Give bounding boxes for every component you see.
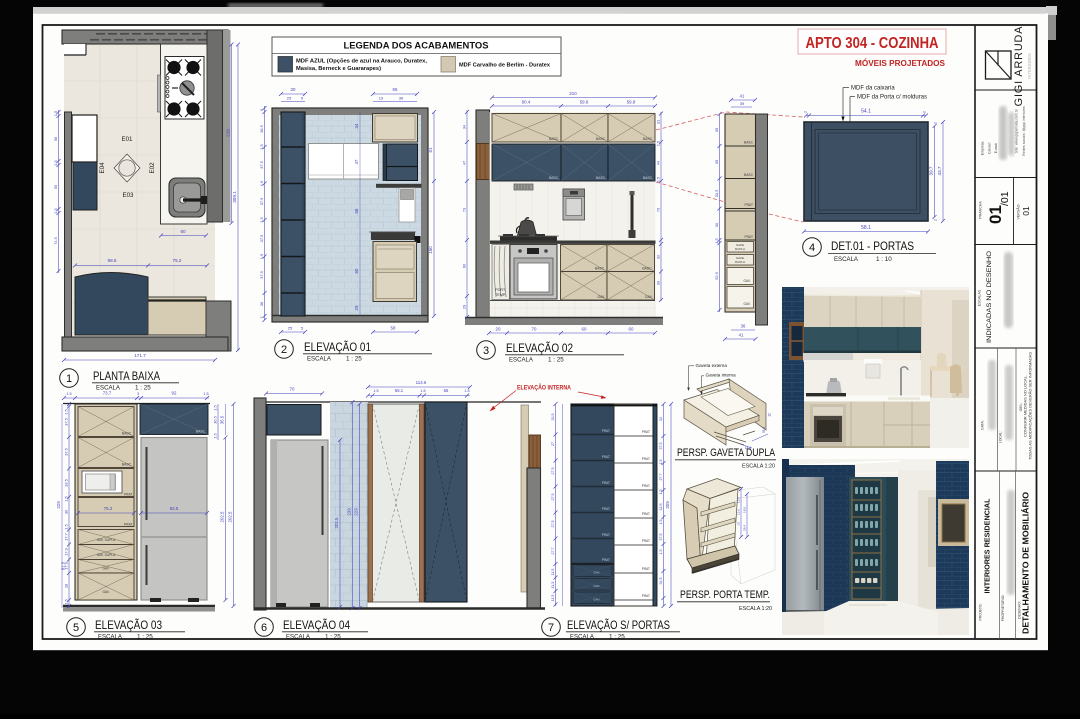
- svg-text:52.9: 52.9: [714, 272, 719, 280]
- svg-text:GAV. DUPLA: GAV. DUPLA: [97, 538, 116, 542]
- svg-text:ESCALA 1:20: ESCALA 1:20: [742, 464, 775, 470]
- svg-text:PRAT: PRAT: [602, 533, 610, 537]
- svg-text:1 : 10: 1 : 10: [876, 256, 892, 263]
- svg-text:1 : 25: 1 : 25: [609, 634, 625, 641]
- svg-text:59.8: 59.8: [580, 100, 589, 105]
- svg-text:31: 31: [655, 120, 660, 124]
- svg-text:PRAT: PRAT: [602, 429, 610, 433]
- svg-text:BASC.: BASC.: [122, 463, 132, 467]
- svg-text:34.5: 34.5: [659, 578, 663, 585]
- svg-text:36.5: 36.5: [220, 415, 225, 424]
- svg-text:ELEVAÇÃO S/ PORTAS: ELEVAÇÃO S/ PORTAS: [567, 619, 670, 632]
- svg-text:1 : 25: 1 : 25: [137, 634, 153, 641]
- svg-text:1.5: 1.5: [212, 405, 217, 410]
- svg-text:2: 2: [934, 219, 938, 221]
- svg-text:39: 39: [714, 160, 719, 164]
- svg-text:25: 25: [287, 96, 292, 101]
- svg-text:ESCALA 1:20: ESCALA 1:20: [739, 606, 772, 612]
- svg-text:PRAT: PRAT: [642, 539, 650, 543]
- svg-text:1.5: 1.5: [63, 524, 68, 529]
- svg-text:1.5: 1.5: [203, 392, 208, 396]
- svg-text:33.5: 33.5: [714, 190, 719, 198]
- svg-text:PRAT.: PRAT.: [124, 523, 133, 527]
- svg-text:PRAT: PRAT: [642, 512, 650, 516]
- svg-text:E-mail:: E-mail:: [994, 143, 998, 154]
- svg-text:1.5: 1.5: [659, 520, 663, 525]
- svg-text:/01: /01: [999, 191, 1011, 206]
- svg-text:41: 41: [740, 94, 745, 99]
- svg-text:202.5: 202.5: [334, 517, 339, 529]
- svg-text:11.5: 11.5: [551, 595, 555, 602]
- svg-text:37.5: 37.5: [259, 198, 264, 206]
- svg-text:DATA:: DATA:: [981, 420, 985, 430]
- svg-text:30.5: 30.5: [212, 416, 217, 424]
- svg-text:GAV.: GAV.: [593, 598, 600, 602]
- svg-text:202.5: 202.5: [220, 511, 225, 523]
- svg-text:90.4: 90.4: [522, 100, 531, 105]
- svg-text:229: 229: [56, 501, 61, 509]
- svg-text:PLANTA BAIXA: PLANTA BAIXA: [93, 370, 160, 383]
- svg-text:37.5: 37.5: [659, 443, 663, 450]
- svg-text:73.7: 73.7: [103, 391, 112, 396]
- svg-text:92: 92: [172, 391, 177, 396]
- svg-text:1.5: 1.5: [63, 599, 68, 604]
- svg-text:GAV.: GAV.: [645, 295, 653, 299]
- svg-text:20: 20: [496, 327, 501, 332]
- svg-text:BASC.: BASC.: [643, 176, 653, 180]
- svg-text:39: 39: [740, 101, 745, 106]
- svg-text:PRAT: PRAT: [602, 455, 610, 459]
- svg-text:MDF Carvalho de Berlim - Durat: MDF Carvalho de Berlim - Duratex: [459, 63, 551, 69]
- svg-text:27.5: 27.5: [551, 494, 555, 501]
- svg-text:202.5: 202.5: [228, 511, 233, 523]
- svg-text:32.5: 32.5: [659, 504, 663, 511]
- svg-text:LEGENDA DOS ACABAMENTOS: LEGENDA DOS ACABAMENTOS: [344, 41, 489, 51]
- svg-text:17.7: 17.7: [63, 533, 68, 541]
- svg-text:PRAT: PRAT: [602, 481, 610, 485]
- svg-text:Gaveta externa: Gaveta externa: [696, 363, 728, 368]
- svg-text:27.5: 27.5: [551, 468, 555, 475]
- svg-text:37.5: 37.5: [259, 161, 264, 169]
- svg-text:59.8: 59.8: [627, 100, 636, 105]
- svg-text:ESCALA: ESCALA: [834, 256, 859, 263]
- svg-text:6: 6: [261, 622, 267, 634]
- svg-text:54.1: 54.1: [861, 109, 871, 115]
- svg-text:3: 3: [137, 392, 139, 396]
- svg-text:60: 60: [629, 327, 634, 332]
- svg-text:41: 41: [739, 333, 744, 338]
- svg-text:36.5: 36.5: [259, 125, 264, 133]
- svg-text:37.5: 37.5: [63, 418, 68, 426]
- svg-text:1.5: 1.5: [659, 490, 663, 495]
- svg-text:3: 3: [483, 345, 489, 357]
- svg-text:GAV.: GAV.: [102, 590, 109, 594]
- svg-text:60: 60: [354, 268, 359, 273]
- svg-text:INTERIORES: INTERIORES: [1027, 53, 1032, 79]
- svg-text:1.5: 1.5: [259, 254, 264, 259]
- svg-text:Empresa:: Empresa:: [981, 141, 985, 156]
- svg-text:INDICADAS NO DESENHO: INDICADAS NO DESENHO: [986, 251, 993, 343]
- svg-text:55.1: 55.1: [395, 388, 404, 393]
- svg-text:PRAT: PRAT: [744, 235, 753, 239]
- svg-text:PRAT: PRAT: [642, 457, 650, 461]
- svg-text:13: 13: [737, 522, 741, 526]
- svg-text:PRAT: PRAT: [642, 484, 650, 488]
- svg-text:2: 2: [923, 111, 927, 113]
- svg-text:BASC.: BASC.: [122, 432, 132, 436]
- svg-text:APTO 304 - COZINHA: APTO 304 - COZINHA: [806, 35, 939, 52]
- svg-text:2: 2: [804, 111, 808, 113]
- svg-text:BASC.: BASC.: [549, 176, 559, 180]
- svg-text:25: 25: [288, 326, 293, 331]
- svg-text:PROPRIETÁRIO:: PROPRIETÁRIO:: [1001, 595, 1005, 622]
- svg-text:ELEVAÇÃO 03: ELEVAÇÃO 03: [95, 619, 162, 632]
- svg-text:37.5: 37.5: [63, 448, 68, 456]
- svg-text:BASC.: BASC.: [596, 176, 606, 180]
- svg-text:171.7: 171.7: [134, 353, 146, 358]
- svg-text:68: 68: [354, 208, 359, 213]
- svg-text:ELEVAÇÃO 04: ELEVAÇÃO 04: [283, 619, 350, 632]
- svg-text:1 : 25: 1 : 25: [346, 356, 362, 363]
- svg-text:Redes sociais: @gigi.interio: Redes sociais: @gigi.interiores: [1022, 106, 1026, 156]
- svg-text:33.5: 33.5: [63, 479, 68, 487]
- svg-text:1: 1: [66, 373, 72, 385]
- svg-text:PERSP. PORTA TEMP.: PERSP. PORTA TEMP.: [680, 589, 770, 601]
- svg-text:DUPLA: DUPLA: [735, 260, 745, 264]
- svg-text:37.5: 37.5: [259, 271, 264, 279]
- svg-text:GAV.: GAV.: [743, 279, 750, 283]
- svg-text:ELEVAÇÃO 02: ELEVAÇÃO 02: [506, 342, 573, 355]
- svg-text:114.6: 114.6: [416, 380, 427, 385]
- svg-text:ESCALA: ESCALA: [509, 357, 534, 364]
- svg-text:1.5: 1.5: [66, 392, 71, 396]
- svg-text:33: 33: [655, 281, 660, 285]
- svg-text:PRANCHA: PRANCHA: [979, 201, 983, 219]
- svg-text:1 : 25: 1 : 25: [548, 357, 564, 364]
- svg-text:2: 2: [281, 344, 287, 356]
- svg-text:18.5: 18.5: [743, 507, 747, 513]
- svg-text:34: 34: [354, 123, 359, 128]
- svg-text:BASC.: BASC.: [642, 267, 652, 271]
- svg-text:28.4: 28.4: [743, 525, 747, 531]
- svg-text:47: 47: [354, 159, 359, 164]
- svg-text:1.5: 1.5: [53, 208, 58, 213]
- svg-text:35.6: 35.6: [762, 427, 766, 433]
- svg-text:BASC: BASC: [744, 141, 754, 145]
- svg-text:93.5: 93.5: [170, 506, 179, 511]
- svg-text:Gaveta interna: Gaveta interna: [706, 373, 737, 378]
- svg-text:ESCALA: ESCALA: [98, 634, 123, 641]
- svg-text:ESCALA: ESCALA: [307, 356, 332, 363]
- svg-text:150: 150: [428, 246, 433, 254]
- svg-text:39.7: 39.7: [929, 166, 934, 175]
- svg-text:1.5: 1.5: [259, 181, 264, 186]
- svg-text:37.5: 37.5: [659, 534, 663, 541]
- svg-text:VERSÃO: VERSÃO: [1016, 204, 1021, 219]
- svg-text:73: 73: [461, 208, 466, 212]
- svg-text:LOCAL:: LOCAL:: [999, 431, 1003, 443]
- svg-text:GAV.: GAV.: [593, 584, 600, 588]
- svg-text:TEMP.: TEMP.: [495, 293, 506, 297]
- svg-text:75.2: 75.2: [173, 258, 182, 263]
- svg-text:17.9: 17.9: [63, 548, 68, 556]
- svg-text:55: 55: [53, 185, 58, 189]
- svg-text:DET.01 - PORTAS: DET.01 - PORTAS: [831, 240, 914, 253]
- svg-text:239: 239: [347, 508, 352, 516]
- svg-text:98.5: 98.5: [108, 258, 117, 263]
- svg-text:01: 01: [1021, 206, 1031, 216]
- svg-text:4: 4: [809, 242, 815, 254]
- svg-text:PRAT: PRAT: [642, 594, 650, 598]
- svg-text:309.1: 309.1: [232, 191, 237, 203]
- svg-text:61: 61: [428, 147, 433, 152]
- svg-text:29: 29: [461, 305, 466, 309]
- svg-text:E04: E04: [99, 162, 106, 174]
- svg-text:Site: www.gigiarruda.com.br: Site: www.gigiarruda.com.br: [1015, 108, 1019, 154]
- svg-text:BASC.: BASC.: [595, 267, 605, 271]
- svg-text:ESCALA: ESCALA: [570, 634, 595, 641]
- svg-text:GAV.: GAV.: [743, 302, 750, 306]
- svg-text:60: 60: [582, 327, 587, 332]
- svg-text:ESCALA: ESCALA: [286, 634, 311, 641]
- svg-text:47: 47: [461, 161, 466, 165]
- svg-text:MDF AZUL (Opções de azul na Ar: MDF AZUL (Opções de azul na Arauco, Dura…: [296, 59, 427, 65]
- svg-text:74.5: 74.5: [53, 237, 58, 245]
- svg-text:28: 28: [63, 584, 68, 588]
- svg-text:1.5: 1.5: [655, 177, 660, 182]
- svg-text:PRAT: PRAT: [642, 430, 650, 434]
- svg-text:GAV.: GAV.: [593, 571, 600, 575]
- svg-text:33.5: 33.5: [551, 414, 555, 421]
- svg-text:PORT.: PORT.: [495, 288, 506, 292]
- svg-text:ELEVAÇÃO INTERNA: ELEVAÇÃO INTERNA: [517, 385, 571, 392]
- svg-text:BASC.: BASC.: [596, 137, 606, 141]
- svg-text:GIGI ARRUDA: GIGI ARRUDA: [1013, 26, 1025, 107]
- svg-text:210: 210: [569, 91, 577, 96]
- svg-text:210: 210: [225, 129, 230, 137]
- svg-text:MÓVEIS PROJETADOS: MÓVEIS PROJETADOS: [855, 57, 945, 68]
- svg-text:55: 55: [393, 87, 398, 92]
- svg-text:27: 27: [551, 442, 555, 446]
- svg-text:PROJETO:: PROJETO:: [979, 604, 983, 621]
- svg-text:ESCALAS: ESCALAS: [978, 289, 982, 306]
- svg-text:37.5: 37.5: [259, 235, 264, 243]
- svg-text:GAV.: GAV.: [597, 295, 605, 299]
- svg-text:INTERIORES RESIDENCIAL: INTERIORES RESIDENCIAL: [983, 498, 992, 594]
- svg-text:ELEVAÇÃO 01: ELEVAÇÃO 01: [304, 341, 371, 354]
- svg-text:1.5: 1.5: [259, 144, 264, 149]
- svg-text:PRAT: PRAT: [642, 567, 650, 571]
- svg-text:PERSP. GAVETA DUPLA: PERSP. GAVETA DUPLA: [677, 447, 775, 459]
- svg-text:70: 70: [290, 387, 295, 392]
- svg-text:73: 73: [655, 208, 660, 212]
- svg-text:DETALHAMENTO DE MOBILIÁRIO: DETALHAMENTO DE MOBILIÁRIO: [1021, 491, 1031, 634]
- svg-text:2: 2: [934, 122, 938, 124]
- svg-text:11.5: 11.5: [551, 569, 555, 576]
- svg-text:56: 56: [53, 137, 58, 141]
- svg-text:GAV. DUPLA: GAV. DUPLA: [97, 553, 116, 557]
- svg-text:229: 229: [354, 508, 359, 516]
- svg-text:30: 30: [291, 87, 296, 92]
- svg-text:36: 36: [741, 324, 746, 329]
- svg-text:36: 36: [259, 302, 264, 306]
- svg-text:1.5: 1.5: [63, 409, 68, 414]
- svg-text:27.7: 27.7: [551, 548, 555, 555]
- svg-text:1.5: 1.5: [420, 389, 425, 393]
- svg-text:70: 70: [532, 327, 537, 332]
- svg-text:12: 12: [768, 413, 772, 417]
- svg-text:Masisa, Berneck e Guararapes): Masisa, Berneck e Guararapes): [296, 66, 381, 72]
- svg-text:PRAT: PRAT: [602, 558, 610, 562]
- svg-text:1.5: 1.5: [659, 550, 663, 555]
- svg-text:PRAT: PRAT: [602, 507, 610, 511]
- svg-text:58: 58: [391, 326, 396, 331]
- svg-text:MDF da Porta c/ molduras: MDF da Porta c/ molduras: [857, 95, 927, 101]
- svg-text:TODAS AS MODIFICAÇÕES DEVERÃO: TODAS AS MODIFICAÇÕES DEVERÃO SER INFORM…: [1028, 352, 1033, 460]
- svg-text:11.5: 11.5: [551, 582, 555, 589]
- svg-text:BASC: BASC: [744, 173, 754, 177]
- svg-text:12.6: 12.6: [737, 509, 741, 515]
- svg-text:1.5: 1.5: [373, 389, 378, 393]
- svg-text:29: 29: [354, 305, 359, 310]
- svg-text:BASC.: BASC.: [549, 137, 559, 141]
- svg-text:1.5: 1.5: [259, 217, 264, 222]
- svg-text:1.5: 1.5: [63, 496, 68, 501]
- svg-text:39: 39: [714, 128, 719, 132]
- svg-text:19: 19: [379, 96, 384, 101]
- svg-text:75.2: 75.2: [104, 506, 113, 511]
- svg-text:209: 209: [665, 501, 670, 509]
- svg-text:1 : 25: 1 : 25: [135, 385, 151, 392]
- svg-text:01: 01: [986, 205, 1005, 224]
- svg-text:GAV.: GAV.: [102, 567, 109, 571]
- svg-text:7: 7: [548, 622, 554, 634]
- svg-text:MDF da caixaria: MDF da caixaria: [851, 86, 895, 92]
- svg-text:81.5: 81.5: [61, 561, 66, 570]
- svg-text:1.5: 1.5: [464, 389, 469, 393]
- svg-text:Celular:: Celular:: [988, 142, 992, 154]
- svg-text:58.1: 58.1: [861, 225, 871, 231]
- svg-text:E03: E03: [122, 192, 134, 199]
- svg-text:36: 36: [399, 96, 404, 101]
- svg-text:E02: E02: [149, 162, 156, 174]
- svg-text:BASC.: BASC.: [196, 430, 206, 434]
- svg-text:1 : 25: 1 : 25: [325, 634, 341, 641]
- svg-text:34: 34: [659, 417, 663, 421]
- svg-text:27.5: 27.5: [551, 521, 555, 528]
- svg-text:PRAT.: PRAT.: [124, 493, 133, 497]
- svg-text:5: 5: [73, 622, 79, 634]
- svg-text:E01: E01: [121, 136, 133, 143]
- svg-text:1.5: 1.5: [212, 433, 217, 438]
- svg-text:DUPLA: DUPLA: [735, 247, 745, 251]
- svg-text:60: 60: [180, 229, 186, 234]
- svg-text:32: 32: [655, 255, 660, 259]
- svg-text:12.6: 12.6: [737, 497, 741, 503]
- svg-text:BASC.: BASC.: [643, 137, 653, 141]
- svg-text:43.7: 43.7: [937, 166, 942, 175]
- svg-text:1.5: 1.5: [53, 160, 58, 165]
- svg-text:PRAT: PRAT: [744, 203, 753, 207]
- svg-text:55: 55: [444, 388, 449, 393]
- svg-text:27.7: 27.7: [659, 474, 663, 481]
